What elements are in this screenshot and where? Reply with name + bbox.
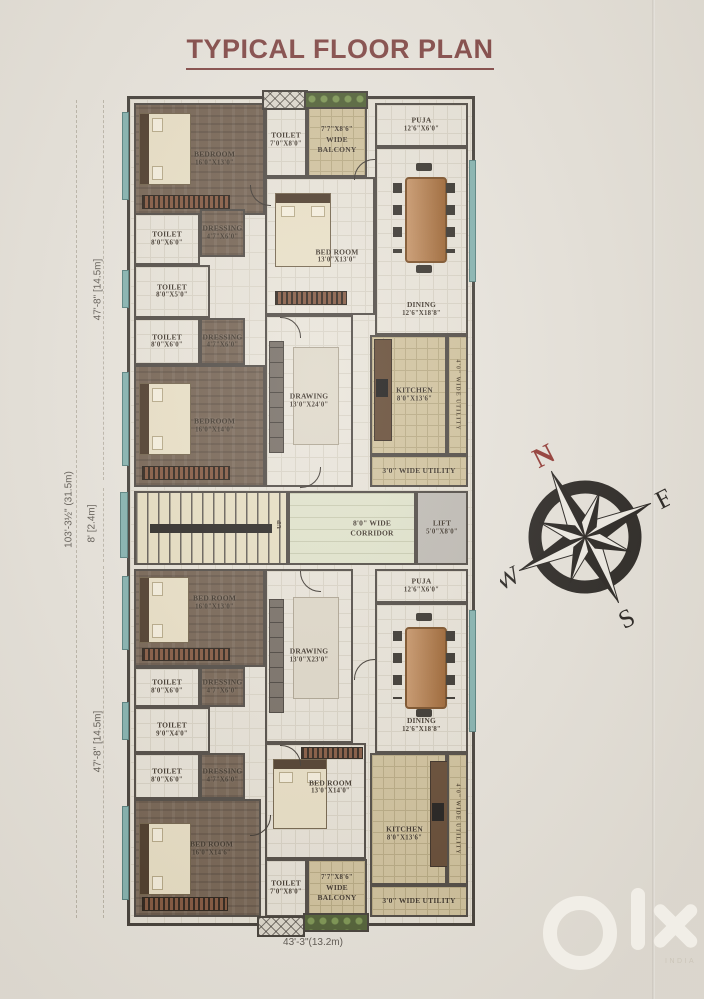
room-toilet-lower-1: TOILET8'0"X6'0": [134, 667, 200, 707]
room-drawing-bottom: DRAWING13'0"X23'0": [265, 569, 353, 743]
olx-watermark: INDIA: [543, 882, 704, 977]
room-dressing-2: DRESSING4'7"X6'0": [200, 318, 245, 365]
window-strip: [122, 702, 129, 740]
stove: [432, 803, 444, 821]
room-bedroom-center-top: BED ROOM13'0"X13'0": [265, 177, 375, 315]
compass-star: [500, 442, 670, 632]
dimension-line: [76, 100, 77, 918]
window-strip: [122, 112, 129, 200]
room-bedroom-mid-left: BEDROOM16'0"X14'0": [134, 365, 265, 487]
page-title: TYPICAL FLOOR PLAN: [120, 34, 560, 70]
room-dining-bottom: DINING12'6"X18'8": [375, 603, 468, 753]
room-bedroom-top-left: BEDROOM16'0"X13'0": [134, 103, 265, 215]
room-dining-top: DINING12'6"X18'8": [375, 147, 468, 335]
room-bedroom-mid-left-lower: BED ROOM16'0"X13'0": [134, 569, 265, 667]
bed: [139, 823, 191, 895]
compass-south-label: S: [614, 602, 640, 632]
hatch-ledge: [262, 90, 308, 110]
lift: LIFT5'0"X8'0": [416, 491, 468, 565]
paper-fold-line: [652, 0, 655, 999]
chairs: [393, 183, 402, 253]
floor-plan: BEDROOM16'0"X13'0" TOILET8'0"X6'0" DRESS…: [127, 96, 475, 926]
wardrobe: [275, 291, 347, 305]
planter-box: [303, 913, 369, 932]
olx-o-icon: [543, 896, 617, 970]
window-strip: [122, 372, 129, 466]
wardrobe: [301, 747, 363, 759]
window-strip: [122, 270, 129, 308]
room-drawing-top: DRAWING13'0"X24'0": [265, 315, 353, 487]
door-arc: [354, 659, 375, 680]
dimension-lower-wing: 47'-8" [14.5m]: [93, 692, 104, 792]
wardrobe: [142, 466, 230, 480]
utility-side-top: 4'0" WIDE UTILITY: [447, 335, 468, 455]
stairs-up-label: UP: [276, 520, 283, 529]
room-kitchen-top: KITCHEN8'0"X13'6": [370, 335, 447, 455]
window-strip: [122, 806, 129, 900]
chairs: [446, 183, 455, 253]
compass-rose: N E S W: [500, 442, 670, 632]
room-toilet-3: TOILET8'0"X6'0": [134, 318, 200, 365]
room-kitchen-bottom: KITCHEN8'0"X13'6": [370, 753, 447, 885]
corridor: 8'0" WIDE CORRIDOR: [288, 491, 416, 565]
dimension-overall-width: 43'-3"(13.2m): [248, 937, 378, 948]
chair: [416, 613, 432, 621]
window-strip: [469, 160, 476, 282]
room-toilet-bottom: TOILET7'0"X8'0": [265, 859, 307, 917]
room-puja-top: PUJA12'6"X6'0": [375, 103, 468, 147]
dining-table: [405, 627, 447, 709]
room-balcony-bottom: 7'7"X8'6"WIDE BALCONY: [307, 859, 367, 917]
utility-strip-top: 3'0" WIDE UTILITY: [370, 455, 468, 487]
dining-table: [405, 177, 447, 263]
dimension-overall-height: 103'-3½" (31.5m): [64, 455, 75, 565]
staircase: UP: [134, 491, 288, 565]
window-strip: [469, 610, 476, 732]
utility-side-bottom: 4'0" WIDE UTILITY: [447, 753, 468, 885]
wardrobe: [142, 648, 230, 661]
wardrobe: [142, 195, 230, 209]
room-dressing-1: DRESSING4'7"X6'0": [200, 209, 245, 257]
dimension-line: [103, 488, 104, 562]
wardrobe: [142, 897, 228, 911]
room-toilet-1: TOILET8'0"X6'0": [134, 213, 200, 265]
olx-india-label: INDIA: [665, 958, 696, 965]
room-toilet-lower-3: TOILET8'0"X6'0": [134, 753, 200, 799]
olx-bar-icon: [631, 888, 645, 950]
room-puja-bottom: PUJA12'6"X6'0": [375, 569, 468, 603]
chairs: [393, 631, 402, 699]
stair-rail: [150, 524, 272, 533]
room-dressing-lower-1: DRESSING4'7"X6'0": [200, 667, 245, 707]
chair: [416, 265, 432, 273]
chairs: [446, 631, 455, 699]
room-dressing-lower-2: DRESSING4'7"X6'0": [200, 753, 245, 799]
window-strip: [122, 576, 129, 650]
hatch-ledge: [257, 916, 305, 937]
dimension-corridor: 8' [2.4m]: [87, 484, 98, 564]
planter-box: [304, 91, 368, 109]
room-toilet-2: TOILET8'0"X5'0": [134, 265, 210, 318]
room-bedroom-bottom-left: BED ROOM16'0"X14'6": [134, 799, 261, 917]
compass-north-label: N: [528, 442, 560, 475]
room-toilet-lower-2: TOILET9'0"X4'0": [134, 707, 210, 753]
compass-west-label: W: [500, 560, 525, 597]
window-strip: [120, 492, 128, 558]
room-toilet-top: TOILET7'0"X8'0": [265, 103, 307, 177]
dimension-upper-wing: 47'-8" [14.5m]: [93, 240, 104, 340]
chair: [416, 163, 432, 171]
utility-strip-bottom: 3'0" WIDE UTILITY: [370, 885, 468, 917]
